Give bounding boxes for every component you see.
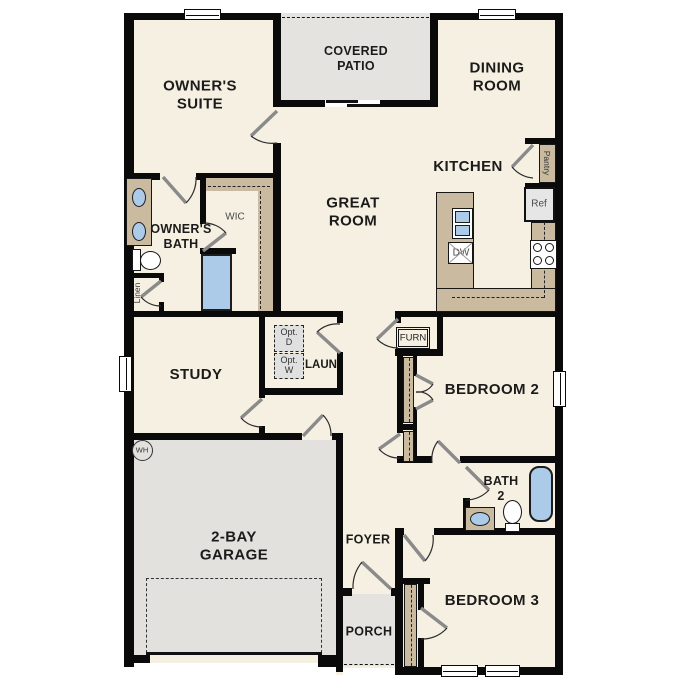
porch-open-edge — [344, 664, 394, 665]
wall-segment — [124, 311, 343, 317]
toilet-icon — [505, 523, 520, 532]
wall-segment — [395, 528, 404, 535]
window-icon — [485, 665, 520, 677]
owners-bath-label: OWNER'SBATH — [150, 222, 211, 252]
wall-segment — [259, 426, 265, 433]
wall-segment — [159, 302, 164, 311]
great-room-label: GREATROOM — [326, 195, 379, 232]
wall-segment — [395, 317, 401, 323]
opt-washer-label: Opt.W — [280, 356, 297, 376]
wall-segment — [273, 13, 281, 107]
sink-icon — [132, 188, 146, 207]
exterior-cut — [343, 668, 395, 687]
linen-label: Linen — [132, 283, 142, 304]
shower-icon — [201, 254, 232, 311]
sink-icon — [470, 512, 490, 526]
wall-segment — [124, 13, 134, 667]
pantry-label: Pantry — [542, 151, 552, 176]
wall-segment — [380, 100, 438, 107]
wall-segment — [343, 588, 352, 596]
garage-label: 2-BAYGARAGE — [200, 529, 268, 566]
burner-icon — [533, 243, 542, 252]
wic-shelf-edge — [260, 191, 261, 309]
bedroom2-label: BEDROOM 2 — [445, 381, 539, 399]
dishwasher-label: DW — [453, 248, 470, 259]
wall-segment — [273, 100, 325, 107]
kitchen-counter — [436, 192, 474, 290]
furnace-label: FURN — [400, 333, 426, 344]
bathtub-icon — [529, 466, 553, 522]
sliding-door-panel — [347, 104, 380, 107]
window-icon — [184, 9, 221, 20]
wall-segment — [395, 667, 563, 675]
closet-shelf — [403, 431, 414, 462]
wall-segment — [391, 588, 395, 596]
laundry-label: LAUN — [305, 359, 337, 371]
water-heater-label: WH — [136, 446, 149, 455]
exterior-cut — [124, 663, 336, 687]
window-icon — [478, 9, 516, 20]
wall-segment — [332, 433, 343, 440]
wic-shelf-edge — [208, 186, 270, 187]
wic-label: WIC — [225, 212, 244, 223]
closet-shelf — [404, 584, 417, 667]
wall-segment — [418, 584, 424, 610]
sink-basin — [455, 211, 470, 223]
toilet-icon — [140, 251, 161, 270]
wall-segment — [159, 273, 164, 282]
covered-patio-label: COVEREDPATIO — [324, 44, 388, 74]
sink-icon — [132, 222, 146, 241]
wall-segment — [124, 655, 150, 663]
wall-segment — [437, 317, 443, 356]
wall-segment — [259, 311, 265, 398]
window-icon — [441, 665, 478, 677]
floor-plan: Linen DW Ref Pantry Opt.D Opt.W FURN WH — [0, 0, 687, 687]
foyer-label: FOYER — [346, 533, 391, 548]
window-icon — [553, 371, 566, 407]
wall-segment — [337, 311, 343, 323]
wall-segment — [430, 13, 438, 107]
kitchen-counter — [436, 288, 556, 312]
wic-shelf — [206, 178, 273, 191]
study-label: STUDY — [170, 366, 223, 384]
garage-door-outline — [146, 578, 322, 653]
closet-shelf — [403, 357, 414, 423]
sliding-door-panel — [326, 100, 358, 103]
porch-label: PORCH — [346, 625, 393, 640]
patio-open-edge — [282, 17, 429, 18]
wall-segment — [555, 13, 563, 675]
wall-segment — [124, 433, 302, 440]
wall-segment — [336, 440, 343, 672]
counter-edge — [452, 297, 544, 298]
bedroom3-label: BEDROOM 3 — [445, 592, 539, 610]
wall-segment — [273, 143, 281, 317]
burner-icon — [545, 256, 554, 265]
wall-segment — [265, 388, 343, 395]
burner-icon — [545, 243, 554, 252]
dining-room-label: DININGROOM — [470, 60, 525, 97]
window-icon — [119, 356, 132, 392]
wall-segment — [395, 535, 403, 675]
burner-icon — [533, 256, 542, 265]
refrigerator-label: Ref — [531, 199, 547, 210]
wall-segment — [418, 638, 424, 668]
bath2-label: BATH2 — [484, 474, 519, 504]
wall-segment — [337, 352, 343, 395]
garage-door-threshold — [146, 652, 322, 655]
opt-dryer-label: Opt.D — [280, 328, 297, 348]
wall-segment — [124, 273, 164, 278]
kitchen-label: KITCHEN — [433, 158, 502, 176]
owners-suite-label: OWNER'SSUITE — [163, 78, 237, 115]
wall-segment — [460, 456, 563, 463]
wall-segment — [434, 528, 463, 535]
sink-basin — [455, 225, 470, 236]
